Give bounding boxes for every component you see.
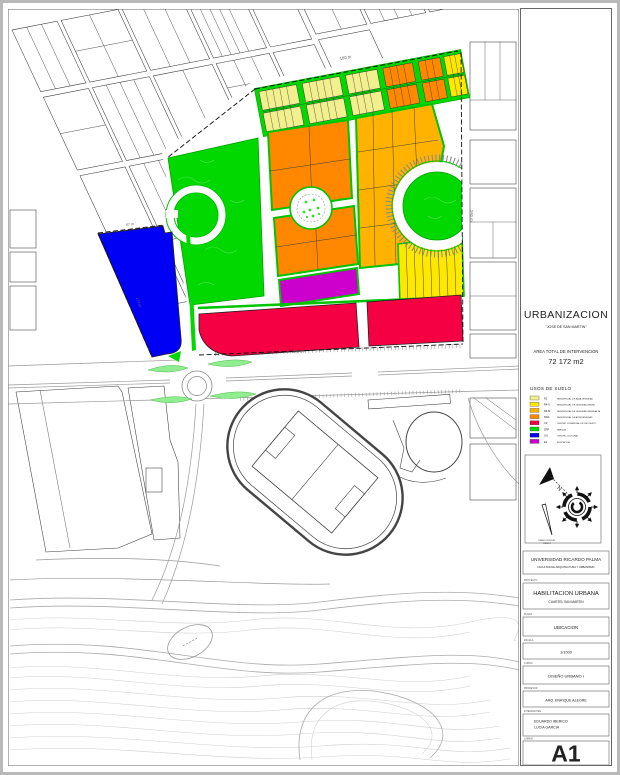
compass-box: N DIRECCION DEL VIENTO [525,455,601,545]
area-label: AREA TOTAL DE INTERVENCION [534,349,599,354]
faculty-name: FACULTAD DE ARQUITECTURA Y URBANISMO [537,565,594,569]
legend-code: CZ [544,421,548,425]
zone-commercial [198,295,463,356]
avenue-roundabout [182,371,212,401]
legend-code: E1 [544,440,548,444]
median-green [208,360,252,367]
legend-label: PARQUE [557,428,567,431]
plano-value: UBICACION [554,625,578,630]
integrante-1: EDUARDO IBERICO [534,720,568,724]
legend-label: EDUCACION [557,441,571,444]
legend-label: CENTRO COMERCIAL DE USO MIXTO [557,422,597,425]
legend-code: R4-M [544,409,550,413]
legend-code: ZRP [544,427,549,431]
project-subtitle: CUARTEL SAN MARTIN [548,600,584,604]
context-blocks-right [470,42,516,500]
wind-caption-1: DIRECCION DEL [538,540,556,542]
dim-bottom: 200 m [292,349,304,354]
legend-label: RESIDENCIAL DE DENSIDAD MEDIA ALTA [557,410,601,413]
contours [10,592,519,762]
lamina-block: LAMINA A1 [523,738,609,767]
central-roundabout [290,187,332,229]
zone-park-main [166,138,264,305]
legend-label: RESIDENCIAL DE BAJA DENSIDAD [557,397,593,400]
integrante-2: LUCIA GARCIA [534,726,560,730]
median-green [148,365,188,372]
escala-value: 1/1000 [560,651,572,655]
site-plan-map: 180 m 200 m 260 m 87 m 174 m [0,0,520,775]
sheet-subtitle: "JOSE DE SAN MARTIN" [545,325,587,329]
sheet-number: A1 [551,741,581,767]
project-title: HABILITACION URBANA [533,591,599,597]
escala-label: ESCALA [524,639,534,642]
profesor-value: ARQ. ENRIQUE ALEGRE [545,699,587,703]
dim-right: 260 m [469,210,474,222]
legend-code: R4-U [544,403,550,407]
legend-heading: USOS DE SUELO [530,386,572,391]
integrantes-block: INTEGRANTES EDUARDO IBERICO LUCIA GARCIA [523,710,609,736]
profesor-label: PROFESOR [524,687,538,690]
plan-sheet: 180 m 200 m 260 m 87 m 174 m URBANIZACIO… [0,0,620,775]
legend-label: RESIDENCIAL DE ALTA DENSIDAD [557,416,593,419]
legend-label: CENTRO CULTURAL [557,435,579,438]
legend-code: OU [544,434,548,438]
curso-value: DISEÑO URBANO I [548,674,584,679]
lamina-label: LAMINA [524,738,533,741]
legend-label: RESIDENCIAL DE DENSIDAD MEDIA [557,404,595,407]
project-label: PROYECTO [524,579,538,582]
sheet-title: URBANIZACION [524,309,608,321]
plano-label: PLANO [524,613,532,616]
integrantes-label: INTEGRANTES [524,710,541,713]
university-name: UNIVERSIDAD RICARDO PALMA [531,557,602,562]
legend-code: R2 [544,396,548,400]
project-block: PROYECTO HABILITACION URBANA CUARTEL SAN… [523,579,609,609]
oval-building [406,412,462,472]
area-value: 72 172 m2 [548,357,583,366]
university-block: UNIVERSIDAD RICARDO PALMA FACULTAD DE AR… [523,551,609,574]
title-panel: URBANIZACION "JOSE DE SAN MARTIN" AREA T… [520,8,612,766]
legend-code: RDA [544,415,550,419]
curso-label: CURSO [524,662,533,665]
wind-caption-2: VIENTO [543,543,551,545]
